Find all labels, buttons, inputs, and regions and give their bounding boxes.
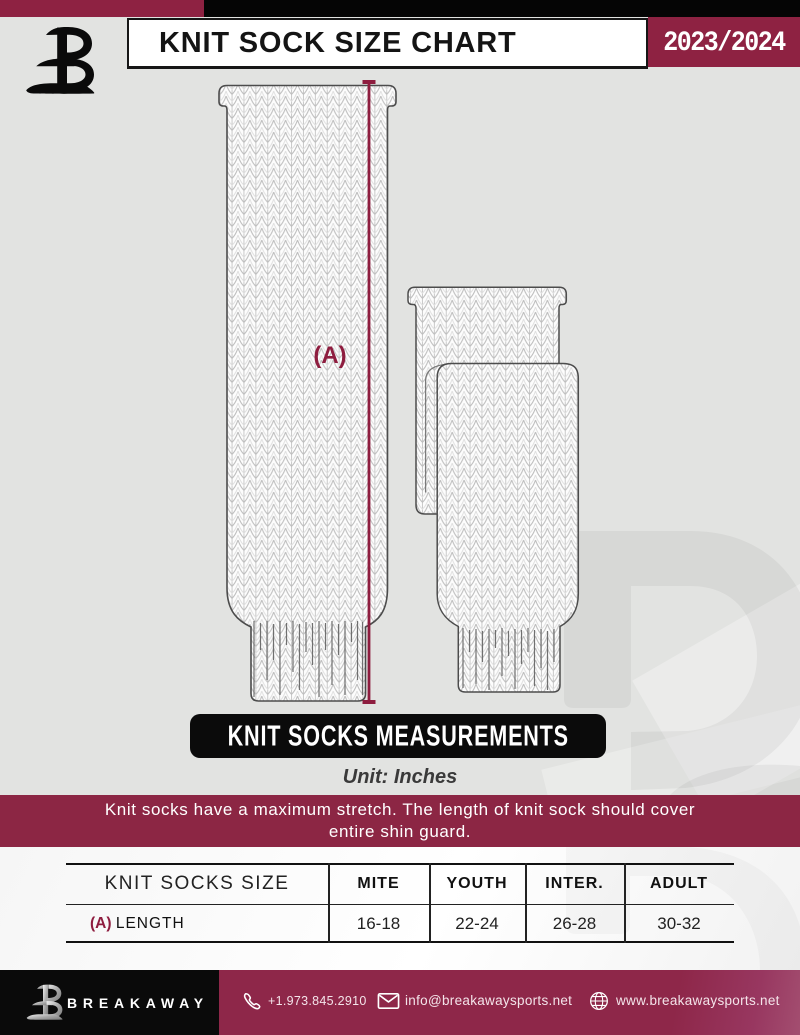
svg-text:(A): (A) <box>313 342 346 369</box>
